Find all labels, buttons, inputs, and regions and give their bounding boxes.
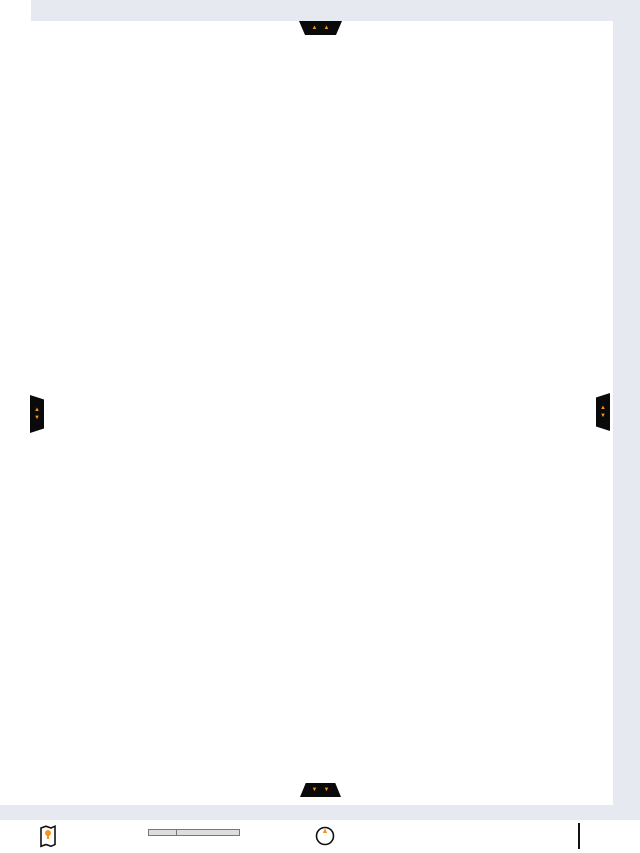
map-icon — [38, 824, 58, 849]
map-canvas — [31, 21, 613, 798]
bottom-grid-band — [0, 805, 640, 820]
arrow-up-icon: ▲ — [312, 25, 318, 31]
map-page: { "header": { "columns": [ {"label":"A",… — [0, 0, 640, 853]
top-grid-band — [31, 0, 640, 21]
arrow-down-icon: ▼ — [600, 413, 606, 419]
scale-bar — [148, 829, 240, 836]
adjacent-page-tab-top: ▲ ▲ — [299, 21, 342, 35]
footer — [0, 820, 640, 853]
adjacent-page-tab-bottom: ▼ ▼ — [300, 783, 341, 797]
title-divider — [578, 823, 580, 849]
arrow-up-icon: ▲ — [600, 405, 606, 411]
arrow-down-icon: ▼ — [34, 415, 40, 421]
bottom-coordinates-row — [31, 797, 613, 805]
arrow-down-icon: ▼ — [312, 787, 318, 793]
adjacent-page-tab-right: ▲ ▼ — [596, 393, 610, 431]
arrow-up-icon: ▲ — [34, 407, 40, 413]
compass-icon — [313, 824, 337, 848]
arrow-down-icon: ▼ — [324, 787, 330, 793]
left-margin — [0, 0, 31, 805]
right-margin — [613, 0, 640, 805]
adjacent-page-tab-left: ▲ ▼ — [30, 395, 44, 433]
arrow-up-icon: ▲ — [324, 25, 330, 31]
